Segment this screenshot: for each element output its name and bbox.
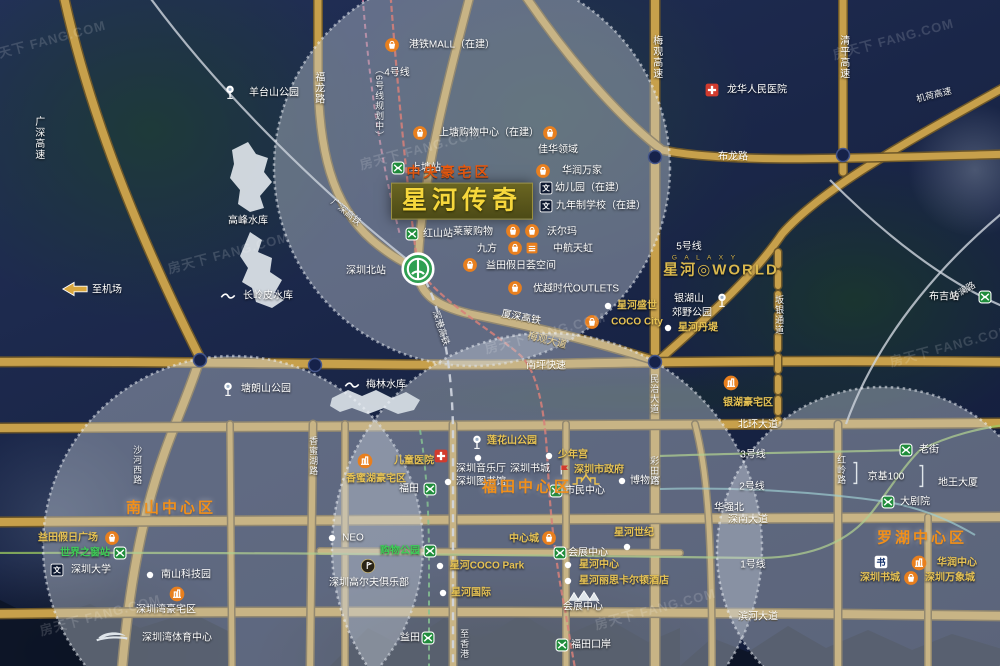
map-label: 沃尔玛: [547, 226, 577, 238]
label-text: 星河世纪: [614, 527, 654, 539]
map-label: 滨河大道: [738, 611, 778, 623]
metro-icon: [900, 444, 913, 457]
map-label: 九年制学校（在建）: [556, 200, 646, 212]
dot-icon: [623, 543, 631, 551]
label-text: 京基100: [868, 471, 905, 483]
map-label: COCO City: [611, 316, 663, 328]
label-text: 滨河大道: [738, 611, 778, 623]
park-icon: [471, 434, 484, 450]
shop-icon: [508, 241, 523, 256]
label-text: 星河丽思卡尔顿酒店: [579, 575, 669, 587]
shop-icon: [508, 281, 523, 296]
shop-icon: [508, 241, 523, 256]
district-label: 福田中心区: [482, 478, 572, 495]
map-label: 红岭路: [836, 455, 846, 485]
tower-icon: [851, 461, 859, 485]
label-text: 罗湖中心区: [877, 529, 967, 546]
dot-icon: [444, 478, 452, 486]
shop-icon: [105, 531, 120, 546]
label-text: 地王大厦: [938, 477, 978, 489]
label-text: 星河◎WORLD: [663, 261, 779, 278]
label-text: 北环大道: [738, 419, 778, 431]
bldg-icon: [169, 586, 185, 602]
label-text: NEO: [342, 532, 364, 544]
shop-icon: [506, 224, 521, 239]
map-label: 布龙路: [718, 151, 748, 163]
map-label: 益田假日荟空间: [486, 260, 556, 272]
map-label: 会展中心: [563, 601, 603, 613]
map-label: 老街: [919, 444, 939, 456]
wave-icon: [220, 292, 236, 301]
label-text: 会展中心: [568, 547, 608, 559]
map-label: 坂银通道: [774, 295, 784, 335]
label-text: 福龙路: [312, 72, 324, 105]
label-text: 香蜜湖豪宅区: [346, 473, 406, 485]
dot-icon: [436, 562, 444, 570]
metro-icon: [422, 632, 435, 645]
map-label: 九方: [477, 243, 497, 255]
dot-icon: [564, 561, 572, 569]
label-text: 广深高铁: [329, 196, 363, 227]
metro-icon: [424, 545, 437, 558]
dot-icon: [604, 302, 612, 310]
shop-icon: [506, 224, 521, 239]
shop-icon: [536, 164, 551, 179]
label-text: 星河丹堤: [678, 322, 718, 334]
flag-icon: [559, 464, 571, 476]
metro-icon: [554, 547, 567, 560]
label-text: 香蜜湖路: [308, 436, 318, 476]
district-label: 南山中心区: [126, 499, 216, 516]
map-label: 银湖山: [674, 293, 704, 305]
map-label: 少年宫: [558, 449, 588, 461]
label-text: 港铁MALL（在建）: [409, 39, 495, 51]
label-text: 中央豪宅区: [407, 164, 492, 180]
label-text: 深圳湾体育中心: [142, 632, 212, 644]
label-text: 莲花山公园: [487, 435, 537, 447]
label-text: 华润中心: [937, 557, 977, 569]
map-label: 机荷高速: [915, 86, 952, 105]
school-icon: 文: [540, 182, 553, 195]
label-text: 坂银通道: [774, 295, 784, 335]
map-label: 深圳高尔夫俱乐部: [329, 577, 409, 589]
label-text: 幼儿园（在建）: [555, 182, 625, 194]
bldg-icon: [357, 453, 373, 469]
map-label: 深圳音乐厅: [456, 463, 506, 475]
map-label: 银湖豪宅区: [723, 397, 773, 409]
map-label: 红山站: [423, 228, 453, 240]
school-icon: 文: [51, 564, 64, 577]
label-text: 大剧院: [900, 496, 930, 508]
label-text: 5号线: [676, 241, 702, 253]
map-label: 儿童医院: [394, 455, 434, 467]
expo-icon: [567, 588, 601, 603]
dotdark-icon: [361, 559, 376, 574]
metro-icon: [424, 545, 437, 558]
label-text: 1号线: [740, 559, 766, 571]
dot-icon: [664, 324, 672, 332]
park-icon: [222, 381, 235, 397]
shop-icon: [904, 571, 919, 586]
label-text: 九方: [477, 243, 497, 255]
map-label: 幼儿园（在建）: [555, 182, 625, 194]
dot-icon: [564, 577, 572, 585]
map-label: 南坪快速: [526, 360, 566, 372]
stadium-icon: [95, 629, 129, 643]
label-text: 3号线: [740, 449, 766, 461]
label-text: 深圳音乐厅: [456, 463, 506, 475]
label-text: 红山站: [423, 228, 453, 240]
watermark: 房天下 FANG.COM: [592, 583, 717, 634]
label-text: 长岭皮水库: [243, 290, 293, 302]
label-text: 少年宫: [558, 449, 588, 461]
map-label: 华强北: [714, 502, 744, 514]
book-icon: 书: [874, 555, 888, 569]
label-text: 深南大道: [728, 514, 768, 526]
project-title: 星河传奇: [391, 183, 533, 220]
label-text: 中航天虹: [553, 243, 593, 255]
map-label: 至香港: [459, 629, 469, 659]
map-label: 地王大厦: [938, 477, 978, 489]
dot-icon: [328, 534, 336, 542]
map-label: 北环大道: [738, 419, 778, 431]
map-label: 香蜜湖路: [308, 436, 318, 476]
map-label: 益田假日广场: [38, 532, 98, 544]
label-text: 福田: [399, 483, 419, 495]
label-text: 星河传奇: [402, 187, 522, 216]
metro-icon: [406, 228, 419, 241]
watermark: 房天下 FANG.COM: [887, 320, 1000, 371]
dot-icon: [604, 302, 612, 310]
label-text: COCO City: [611, 316, 663, 328]
shop-icon: [463, 258, 478, 273]
arrow-icon: [61, 282, 89, 297]
gov-icon: [571, 471, 601, 486]
hospital-icon: [705, 83, 719, 97]
metro-icon: [900, 444, 913, 457]
bldg-icon: [911, 555, 927, 571]
label-text: 华润万家: [562, 165, 602, 177]
map-label: 星河丹堤: [678, 322, 718, 334]
dot-icon: [564, 577, 572, 585]
labels-layer: 港铁MALL（在建）4号线（6号线规划中）福龙路广深高速羊台山公园龙华人民医院梅…: [0, 0, 1000, 666]
map-label: 中心城: [509, 533, 539, 545]
label-text: 羊台山公园: [249, 87, 299, 99]
label-text: 银湖山: [674, 293, 704, 305]
metro-icon: [556, 639, 569, 652]
label-text: 优越时代OUTLETS: [533, 283, 619, 295]
map-label: 星河COCO Park: [450, 560, 524, 572]
metro-icon: [114, 547, 127, 560]
hospital-icon: [434, 449, 448, 463]
shop-icon: [525, 224, 540, 239]
dot-icon: [564, 561, 572, 569]
map-label: 彩田路: [649, 456, 659, 486]
label-text: 深圳万象城: [925, 572, 975, 584]
map-label: 星河◎WORLD: [663, 261, 779, 278]
map-label: 优越时代OUTLETS: [533, 283, 619, 295]
shop-icon: [542, 531, 557, 546]
map-label: 华润中心: [937, 557, 977, 569]
shop-icon: [385, 38, 400, 53]
label-text: 莱蒙购物: [453, 226, 493, 238]
map-label: 佳华领域: [538, 144, 578, 156]
map-label: 梅林水库: [366, 379, 406, 391]
dot-icon: [623, 543, 631, 551]
park-icon: [224, 84, 237, 100]
map-label: 中央豪宅区: [407, 164, 492, 180]
map-label: 星河国际: [451, 587, 491, 599]
label-text: 南坪快速: [526, 360, 566, 372]
map-label: 2号线: [739, 481, 765, 493]
label-text: （6号线规划中）: [374, 65, 384, 141]
dotdark-icon: [361, 559, 376, 574]
shop-icon: [105, 531, 120, 546]
label-text: 华强北: [714, 502, 744, 514]
flag-icon: [559, 464, 571, 476]
map-label: 龙华人民医院: [727, 84, 787, 96]
label-text: 广深高速: [32, 116, 44, 160]
map-label: 大剧院: [900, 496, 930, 508]
label-text: 星河盛世: [617, 300, 657, 312]
map-label: 香蜜湖豪宅区: [346, 473, 406, 485]
park-icon: [471, 434, 484, 450]
school-icon: 文: [540, 200, 553, 213]
dot-icon: [474, 454, 482, 462]
dot-icon: [545, 452, 553, 460]
metro-icon: [556, 639, 569, 652]
label-text: 高峰水库: [228, 215, 268, 227]
dot-icon: [618, 477, 626, 485]
label-text: 会展中心: [563, 601, 603, 613]
wave-icon: [344, 381, 360, 390]
map-label: 中航天虹: [553, 243, 593, 255]
label-text: 益田假日广场: [38, 532, 98, 544]
shop-icon: [385, 38, 400, 53]
map-label: 星河世纪: [614, 527, 654, 539]
shop-icon: [508, 281, 523, 296]
map-label: 莱蒙购物: [453, 226, 493, 238]
label-text: 世界之窗站: [60, 547, 110, 559]
map-label: 深圳湾体育中心: [142, 632, 212, 644]
label-text: 老街: [919, 444, 939, 456]
park-icon: [222, 381, 235, 397]
label-text: 布吉站: [929, 291, 959, 303]
school-icon: 文: [540, 200, 553, 213]
dot-icon: [436, 562, 444, 570]
label-text: 民治大道: [649, 374, 659, 414]
label-text: 深圳高尔夫俱乐部: [329, 577, 409, 589]
label-text: 中心城: [509, 533, 539, 545]
hospital-icon: [705, 83, 719, 97]
metro-icon: [422, 632, 435, 645]
shop-icon: [463, 258, 478, 273]
map-label: 港铁MALL（在建）: [409, 39, 495, 51]
label-text: 龙华人民医院: [727, 84, 787, 96]
map-label: 深圳北站: [346, 265, 386, 277]
stadium-icon: [95, 629, 129, 643]
district-label: 罗湖中心区: [877, 529, 967, 546]
dot-icon: [474, 454, 482, 462]
map-label: 塘朗山公园: [241, 383, 291, 395]
map-label: 布吉站: [929, 291, 959, 303]
metro-icon: [882, 496, 895, 509]
svg-text:文: 文: [542, 201, 550, 211]
bldg-icon: [357, 453, 373, 469]
school-icon: 文: [540, 182, 553, 195]
map-label: 福田口岸: [571, 639, 611, 651]
metro-icon: [114, 547, 127, 560]
metro-icon: [979, 291, 992, 304]
metro-icon: [424, 483, 437, 496]
svg-text:文: 文: [53, 565, 61, 575]
map-label: 广深高速: [32, 116, 44, 160]
label-text: 深港高铁: [431, 309, 452, 346]
label-text: 至机场: [92, 284, 122, 296]
label-text: 购物公园: [380, 545, 420, 557]
map-label: 沙河西路: [132, 445, 142, 485]
tower-icon: [917, 464, 925, 488]
bldg-icon: [723, 375, 739, 391]
map-label: 民治大道: [649, 374, 659, 414]
park-icon: [716, 292, 729, 308]
label-text: 福田口岸: [571, 639, 611, 651]
metro-icon: [406, 228, 419, 241]
map-label: 4号线: [384, 67, 410, 79]
tower-icon: [851, 461, 859, 485]
bldg-icon: [911, 555, 927, 571]
map-label: 郊野公园: [672, 307, 712, 319]
railbadge-icon: [401, 252, 435, 286]
label-text: 梅观高速: [650, 35, 662, 79]
book-icon: 书: [874, 555, 888, 569]
dot-icon: [328, 534, 336, 542]
shop-icon: [542, 531, 557, 546]
metro-icon: [424, 483, 437, 496]
shop-icon: [543, 126, 558, 141]
label-text: 佳华领域: [538, 144, 578, 156]
bldg-icon: [723, 375, 739, 391]
label-text: 沃尔玛: [547, 226, 577, 238]
label-text: 梅林水库: [366, 379, 406, 391]
metro-icon: [882, 496, 895, 509]
dot-icon: [664, 324, 672, 332]
map-label: NEO: [342, 532, 364, 544]
map-label: 梅观高速: [650, 35, 662, 79]
label-text: 福田中心区: [482, 478, 572, 495]
map-label: 深圳书城: [860, 572, 900, 584]
hospital-icon: [434, 449, 448, 463]
map-label: 福龙路: [312, 72, 324, 105]
dot-icon: [439, 589, 447, 597]
map-label: 星河盛世: [617, 300, 657, 312]
label-text: 4号线: [384, 67, 410, 79]
label-text: 深圳北站: [346, 265, 386, 277]
map-label: 福田: [399, 483, 419, 495]
map-label: 会展中心: [568, 547, 608, 559]
wave-icon: [220, 292, 236, 301]
arrow-icon: [61, 282, 89, 297]
label-text: 九年制学校（在建）: [556, 200, 646, 212]
shopsq-icon: [526, 242, 539, 255]
bldg-icon: [169, 586, 185, 602]
map-label: 华润万家: [562, 165, 602, 177]
map-label: 深圳大学: [71, 564, 111, 576]
map-label: 星河丽思卡尔顿酒店: [579, 575, 669, 587]
svg-text:书: 书: [876, 557, 885, 568]
label-text: 益田假日荟空间: [486, 260, 556, 272]
label-text: 深圳书城: [510, 463, 550, 475]
expo-icon: [567, 588, 601, 603]
label-text: 至香港: [459, 629, 469, 659]
label-text: 彩田路: [649, 456, 659, 486]
label-text: 深圳书城: [860, 572, 900, 584]
label-text: 沙河西路: [132, 445, 142, 485]
dot-icon: [545, 452, 553, 460]
map-label: 至机场: [92, 284, 122, 296]
school-icon: 文: [51, 564, 64, 577]
dot-icon: [439, 589, 447, 597]
map-label: 南山科技园: [161, 569, 211, 581]
map-label: （6号线规划中）: [374, 65, 384, 141]
watermark: 房天下 FANG.COM: [165, 227, 290, 278]
map-label: 世界之窗站: [60, 547, 110, 559]
label-text: 星河COCO Park: [450, 560, 524, 572]
label-text: 2号线: [739, 481, 765, 493]
dot-icon: [146, 571, 154, 579]
shop-icon: [543, 126, 558, 141]
shop-icon: [536, 164, 551, 179]
gov-icon: [571, 471, 601, 486]
label-text: 星河国际: [451, 587, 491, 599]
label-text: 布龙路: [718, 151, 748, 163]
map-label: 1号线: [740, 559, 766, 571]
label-text: 郊野公园: [672, 307, 712, 319]
map-label: 5号线: [676, 241, 702, 253]
label-text: 深圳大学: [71, 564, 111, 576]
map-label: 益田: [400, 632, 420, 644]
label-text: 益田: [400, 632, 420, 644]
shenzhen-north-station-badge: [401, 252, 435, 286]
park-icon: [224, 84, 237, 100]
map-label: 3号线: [740, 449, 766, 461]
label-text: 儿童医院: [394, 455, 434, 467]
label-text: 机荷高速: [915, 86, 952, 105]
svg-text:文: 文: [542, 183, 550, 193]
label-text: 星河中心: [579, 559, 619, 571]
tower-icon: [917, 464, 925, 488]
park-icon: [716, 292, 729, 308]
label-text: 银湖豪宅区: [723, 397, 773, 409]
wave-icon: [344, 381, 360, 390]
dot-icon: [146, 571, 154, 579]
map-canvas: 港铁MALL（在建）4号线（6号线规划中）福龙路广深高速羊台山公园龙华人民医院梅…: [0, 0, 1000, 666]
map-label: 星河中心: [579, 559, 619, 571]
map-label: 深圳书城: [510, 463, 550, 475]
label-text: 红岭路: [836, 455, 846, 485]
watermark: 房天下 FANG.COM: [0, 15, 108, 66]
shop-icon: [904, 571, 919, 586]
map-label: 购物公园: [380, 545, 420, 557]
map-label: 羊台山公园: [249, 87, 299, 99]
shop-icon: [525, 224, 540, 239]
map-label: 深港高铁: [431, 309, 452, 346]
dot-icon: [618, 477, 626, 485]
map-label: 广深高铁: [329, 196, 363, 227]
label-text: 塘朗山公园: [241, 383, 291, 395]
label-text: 南山科技园: [161, 569, 211, 581]
metro-icon: [979, 291, 992, 304]
